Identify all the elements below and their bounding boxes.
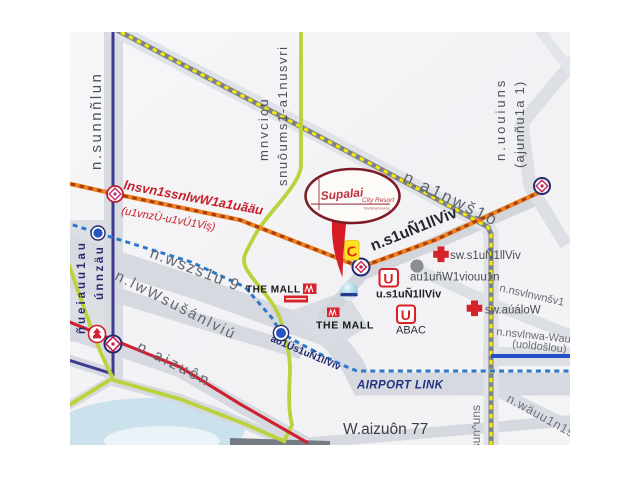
svg-text:sw.s1uÑ1llViv: sw.s1uÑ1llViv: [450, 249, 521, 262]
svg-text:n.sunnñlun: n.sunnñlun: [88, 72, 105, 170]
svg-text:n.uouiuns: n.uouiuns: [493, 78, 508, 161]
svg-text:C: C: [347, 244, 358, 261]
svg-text:snuôums1-a1nusvri: snuôums1-a1nusvri: [275, 45, 290, 186]
svg-text:AIRPORT LINK: AIRPORT LINK: [356, 380, 444, 392]
svg-text:Ramkhamhaeng: Ramkhamhaeng: [364, 207, 390, 211]
svg-text:sw.aúáloW: sw.aúáloW: [485, 305, 541, 317]
svg-text:únnzäu: únnzäu: [94, 245, 106, 300]
svg-text:mnvciou: mnvciou: [256, 97, 271, 161]
svg-text:(ajunñu1a 1): (ajunñu1a 1): [512, 81, 527, 168]
svg-text:U: U: [401, 307, 411, 323]
svg-text:n.ñšun^uns: n.ñšun^uns: [469, 405, 483, 466]
svg-text:u.s1uÑ1llViv: u.s1uÑ1llViv: [376, 288, 442, 301]
svg-text:U: U: [383, 271, 393, 287]
svg-text:ABAC: ABAC: [396, 325, 426, 337]
svg-text:ñueiauu1au: ñueiauu1au: [76, 240, 88, 334]
svg-text:W.aizuôn 77: W.aizuôn 77: [343, 421, 428, 438]
svg-text:THE MALL: THE MALL: [246, 285, 301, 296]
svg-text:THE MALL: THE MALL: [316, 320, 374, 332]
svg-text:au1uñW1viouu1n: au1uñW1viouu1n: [410, 272, 500, 284]
svg-text:City Resort: City Resort: [362, 197, 395, 204]
